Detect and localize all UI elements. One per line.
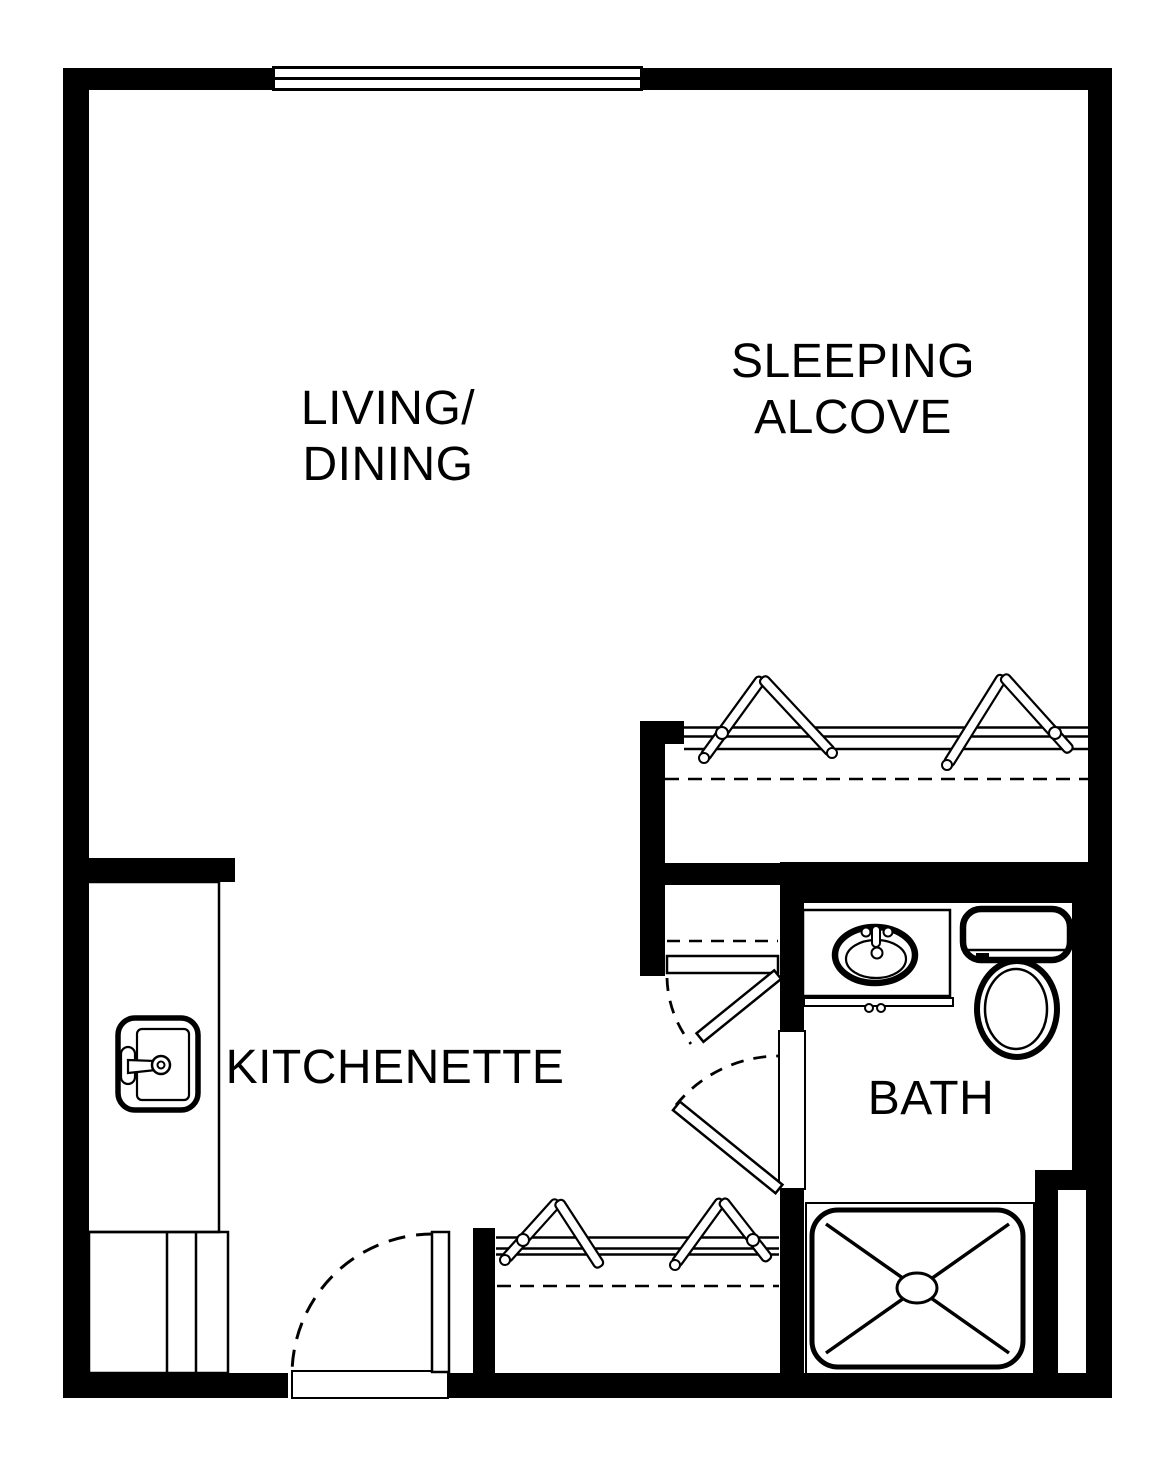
kitchen-counter bbox=[86, 882, 228, 1373]
wall-hall-top bbox=[665, 863, 780, 885]
wall-right-lower bbox=[1086, 1190, 1112, 1398]
wall-hall-bath-upper bbox=[780, 885, 804, 1030]
wall-shower-cap bbox=[1035, 1170, 1112, 1190]
room-label-kitchenette: KITCHENETTE bbox=[226, 1040, 565, 1096]
wall-kitchen-stub bbox=[63, 858, 235, 882]
bath-text: BATH bbox=[868, 1071, 994, 1127]
window-mullion bbox=[274, 77, 641, 80]
bathroom-sink-icon bbox=[803, 910, 953, 1012]
wall-alcove-vertical bbox=[640, 721, 665, 976]
wall-chase bbox=[1058, 1190, 1086, 1373]
fixtures-layer bbox=[0, 0, 1175, 1458]
wall-hall-bath-lower bbox=[780, 1190, 804, 1398]
toilet-icon bbox=[963, 909, 1070, 1057]
living-dining-line1: LIVING/ bbox=[301, 381, 475, 437]
room-label-bath: BATH bbox=[868, 1071, 994, 1127]
entry-threshold bbox=[291, 1370, 449, 1399]
hall-door-leaf bbox=[697, 970, 782, 1041]
bath-door-swing bbox=[673, 1056, 783, 1193]
wall-bath-top bbox=[780, 862, 1072, 903]
clothes-hanger-icon bbox=[500, 1198, 605, 1269]
wall-right-bath bbox=[1072, 862, 1112, 1170]
clothes-hanger-icon bbox=[699, 675, 837, 763]
linen-closet bbox=[667, 941, 778, 973]
hall-door-swing bbox=[667, 970, 781, 1044]
living-dining-line2: DINING bbox=[301, 437, 475, 493]
hall-closet bbox=[496, 1197, 779, 1286]
window-icon bbox=[272, 66, 643, 91]
kitchenette-text: KITCHENETTE bbox=[226, 1040, 565, 1096]
wall-bottom-left bbox=[63, 1373, 288, 1398]
room-label-living-dining: LIVING/ DINING bbox=[301, 381, 475, 493]
entry-door-swing bbox=[292, 1232, 449, 1374]
clothes-hanger-icon bbox=[942, 673, 1074, 770]
wall-shower-side bbox=[1035, 1190, 1058, 1398]
wall-bottom-closet-stub bbox=[473, 1228, 495, 1398]
wall-left bbox=[63, 68, 89, 1398]
clothes-hanger-icon bbox=[670, 1197, 773, 1270]
alcove-closet bbox=[665, 673, 1088, 779]
floor-plan-canvas: LIVING/ DINING SLEEPING ALCOVE KITCHENET… bbox=[0, 0, 1175, 1458]
bath-doorway bbox=[778, 1030, 806, 1190]
shower-drain bbox=[897, 1273, 937, 1303]
room-label-sleeping-alcove: SLEEPING ALCOVE bbox=[731, 334, 975, 446]
kitchen-sink-icon bbox=[118, 1018, 198, 1110]
wall-right-upper bbox=[1088, 68, 1112, 862]
bath-door-leaf bbox=[673, 1102, 783, 1194]
shower-icon bbox=[806, 1203, 1034, 1374]
sleeping-alcove-line1: SLEEPING bbox=[731, 334, 975, 390]
sleeping-alcove-line2: ALCOVE bbox=[731, 390, 975, 446]
entry-door-leaf bbox=[432, 1232, 449, 1372]
